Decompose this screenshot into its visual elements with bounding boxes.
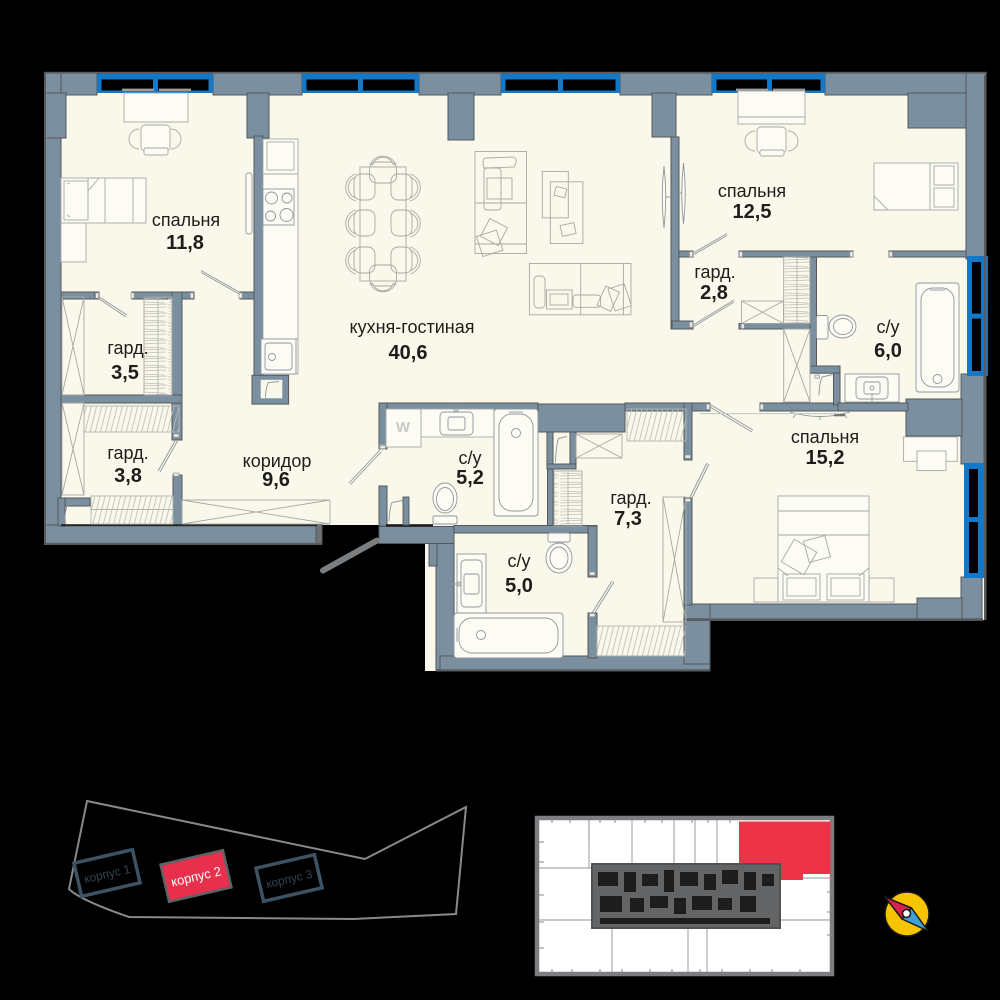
svg-text:с/у: с/у: [507, 551, 530, 571]
svg-text:спальня: спальня: [718, 181, 786, 201]
svg-text:гард.: гард.: [107, 338, 148, 358]
svg-text:с/у: с/у: [458, 448, 481, 468]
svg-text:коридор: коридор: [243, 451, 312, 471]
svg-text:15,2: 15,2: [806, 447, 845, 469]
svg-text:гард.: гард.: [694, 262, 735, 282]
svg-text:40,6: 40,6: [389, 342, 428, 364]
svg-text:3,5: 3,5: [111, 362, 139, 384]
svg-text:гард.: гард.: [107, 443, 148, 463]
svg-text:6,0: 6,0: [874, 340, 902, 362]
svg-text:7,3: 7,3: [614, 508, 642, 530]
svg-text:9,6: 9,6: [262, 469, 290, 491]
svg-text:5,2: 5,2: [456, 467, 484, 489]
svg-text:спальня: спальня: [152, 210, 220, 230]
svg-text:2,8: 2,8: [700, 282, 728, 304]
svg-text:гард.: гард.: [610, 488, 651, 508]
svg-text:с/у: с/у: [876, 317, 899, 337]
svg-text:12,5: 12,5: [733, 201, 772, 223]
svg-text:5,0: 5,0: [505, 575, 533, 597]
svg-text:W: W: [396, 419, 411, 436]
svg-text:кухня-гостиная: кухня-гостиная: [350, 317, 475, 337]
svg-text:спальня: спальня: [791, 427, 859, 447]
svg-text:11,8: 11,8: [166, 232, 204, 254]
svg-text:3,8: 3,8: [114, 465, 142, 487]
